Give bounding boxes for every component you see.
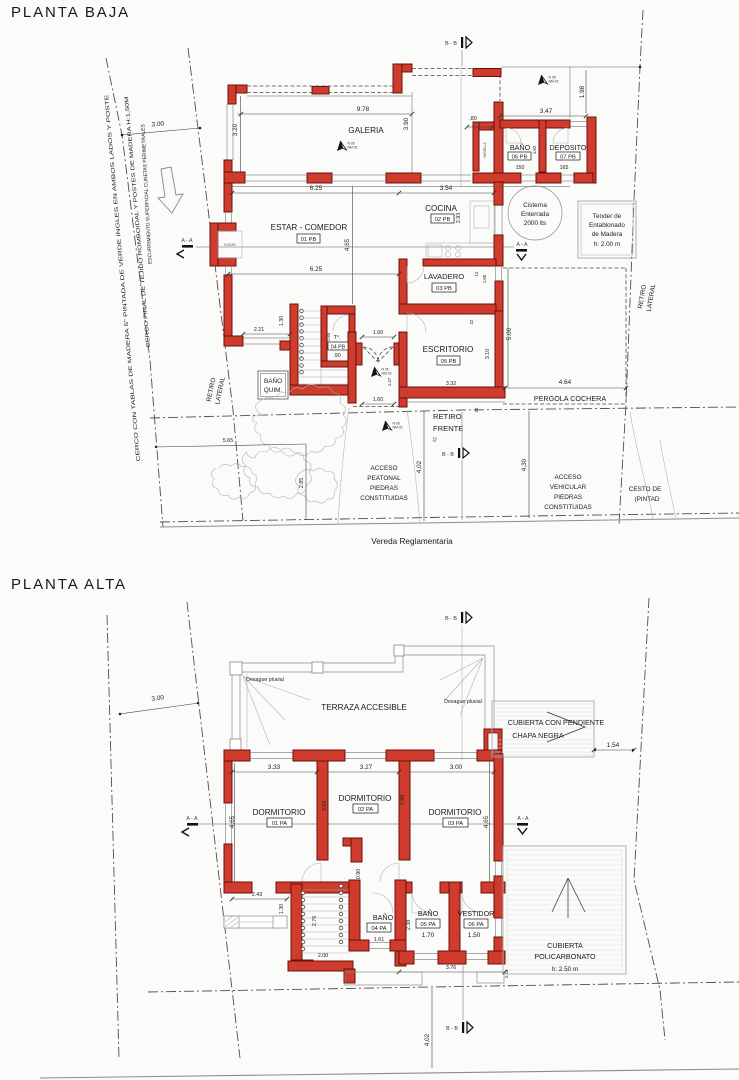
svg-text:A - A: A - A xyxy=(186,816,198,822)
svg-text:4,65: 4,65 xyxy=(229,815,236,828)
svg-text:3.63: 3.63 xyxy=(322,801,328,811)
svg-text:CUBIERTA CON PENDIENTE: CUBIERTA CON PENDIENTE xyxy=(508,718,605,727)
svg-text:04 PB: 04 PB xyxy=(331,345,346,351)
svg-text:4,65: 4,65 xyxy=(344,238,351,251)
svg-text:FRENTE: FRENTE xyxy=(433,424,463,433)
svg-text:1.61: 1.61 xyxy=(374,937,384,943)
svg-text:(PINTAD: (PINTAD xyxy=(634,496,659,503)
svg-text:3.00: 3.00 xyxy=(450,764,463,771)
svg-text:1.47: 1.47 xyxy=(387,377,392,386)
svg-text:1.98: 1.98 xyxy=(579,85,586,98)
svg-text:22: 22 xyxy=(469,319,474,324)
svg-text:VESTIDOR: VESTIDOR xyxy=(458,909,495,918)
svg-text:03 PB: 03 PB xyxy=(436,286,452,292)
svg-text:3.27: 3.27 xyxy=(360,764,373,771)
svg-text:3.33: 3.33 xyxy=(268,764,281,771)
svg-text:de Madera: de Madera xyxy=(592,231,623,238)
svg-text:ESTAR - COMEDOR: ESTAR - COMEDOR xyxy=(271,223,348,232)
svg-text:LAVADERO: LAVADERO xyxy=(424,272,464,281)
svg-text:2.98: 2.98 xyxy=(400,795,406,805)
svg-text:2.85: 2.85 xyxy=(299,478,305,488)
svg-text:TERRAZA ACCESIBLE: TERRAZA ACCESIBLE xyxy=(321,703,407,712)
svg-text:04 PA: 04 PA xyxy=(371,926,386,932)
svg-text:GALERIA: GALERIA xyxy=(348,126,384,135)
svg-text:VEHICULAR: VEHICULAR xyxy=(550,484,587,491)
svg-text:PIEDRAS: PIEDRAS xyxy=(554,494,582,501)
svg-text:3.90: 3.90 xyxy=(403,117,410,130)
svg-text:03 PA: 03 PA xyxy=(448,821,463,827)
svg-text:DORMITORIO: DORMITORIO xyxy=(428,808,481,817)
svg-text:Vereda Reglamentaria: Vereda Reglamentaria xyxy=(371,537,453,546)
svg-text:POLICARBONATO: POLICARBONATO xyxy=(534,952,596,961)
svg-text:2.21: 2.21 xyxy=(254,327,264,333)
svg-text:Desague pluvial: Desague pluvial xyxy=(246,677,284,683)
svg-text:HOGAR: HOGAR xyxy=(224,243,236,247)
svg-text:12: 12 xyxy=(474,271,479,276)
svg-text:DORMITORIO: DORMITORIO xyxy=(252,808,305,817)
svg-text:6.25: 6.25 xyxy=(310,185,323,192)
svg-text:5.65: 5.65 xyxy=(223,438,233,444)
svg-text:1.70: 1.70 xyxy=(422,932,435,939)
svg-text:150: 150 xyxy=(516,165,525,171)
svg-text:PEATONAL: PEATONAL xyxy=(367,475,401,482)
svg-text:2.38: 2.38 xyxy=(406,920,412,930)
svg-text:DEPOSITO: DEPOSITO xyxy=(549,143,586,152)
svg-text:1.30: 1.30 xyxy=(279,904,285,914)
svg-text:1.50: 1.50 xyxy=(468,932,481,939)
svg-text:05 PB: 05 PB xyxy=(441,359,457,365)
svg-text:h: 2.00 m: h: 2.00 m xyxy=(594,241,621,248)
svg-text:02 PA: 02 PA xyxy=(358,807,373,813)
svg-text:1.30: 1.30 xyxy=(279,316,285,326)
svg-text:COCINA: COCINA xyxy=(425,204,457,213)
svg-text:Desague pluvial: Desague pluvial xyxy=(444,699,482,705)
svg-text:01 PA: 01 PA xyxy=(272,821,287,827)
svg-text:Entablonado: Entablonado xyxy=(589,222,625,229)
svg-text:1.60: 1.60 xyxy=(482,274,487,283)
svg-text:06 PB: 06 PB xyxy=(512,155,528,161)
svg-text:CUBIERTA: CUBIERTA xyxy=(547,941,583,950)
svg-text:1.84: 1.84 xyxy=(326,332,331,341)
svg-text:3.00: 3.00 xyxy=(151,694,165,703)
svg-text:0.90: 0.90 xyxy=(356,869,362,879)
svg-text:2.93: 2.93 xyxy=(456,213,462,223)
svg-text:Enterrada: Enterrada xyxy=(521,211,550,218)
svg-text:6.25: 6.25 xyxy=(310,266,323,273)
svg-text:CONSTITUIDAS: CONSTITUIDAS xyxy=(360,495,408,502)
svg-text:T°.: T°. xyxy=(334,335,341,341)
svg-text:22: 22 xyxy=(432,436,438,443)
svg-text:07 PB: 07 PB xyxy=(560,155,576,161)
svg-text:B - B: B - B xyxy=(442,452,454,458)
svg-text:PERGOLA COCHERA: PERGOLA COCHERA xyxy=(534,394,606,403)
svg-text:RETIRO: RETIRO xyxy=(433,412,462,421)
svg-text:3.54: 3.54 xyxy=(440,185,453,192)
svg-text:3.32: 3.32 xyxy=(446,381,456,387)
svg-text:PLANTA ALTA: PLANTA ALTA xyxy=(11,576,127,593)
svg-text:4.64: 4.64 xyxy=(559,379,572,386)
svg-text:2.00: 2.00 xyxy=(318,953,328,959)
svg-text:01 PB: 01 PB xyxy=(301,237,317,243)
svg-text:4,30: 4,30 xyxy=(521,458,528,471)
svg-text:QUIM.: QUIM. xyxy=(264,387,283,394)
svg-text:3.00: 3.00 xyxy=(151,120,164,128)
svg-text:165: 165 xyxy=(560,165,569,171)
svg-text:ESCRITORIO: ESCRITORIO xyxy=(423,345,474,354)
svg-text:PLANTA BAJA: PLANTA BAJA xyxy=(11,4,130,21)
svg-text:3.20: 3.20 xyxy=(232,123,239,136)
svg-text:.90: .90 xyxy=(333,353,340,359)
svg-text:BAÑO: BAÑO xyxy=(373,913,394,922)
svg-text:B - B: B - B xyxy=(445,616,457,622)
svg-text:A - A: A - A xyxy=(516,242,528,248)
svg-text:DORMITORIO: DORMITORIO xyxy=(338,794,391,803)
svg-text:Cisterna: Cisterna xyxy=(523,202,547,209)
svg-text:BAÑO: BAÑO xyxy=(264,376,282,385)
svg-text:B - B: B - B xyxy=(446,1026,458,1032)
svg-text:BAÑO: BAÑO xyxy=(510,143,531,152)
svg-text:02 PB: 02 PB xyxy=(435,217,451,223)
svg-text:ACCESO: ACCESO xyxy=(371,465,398,472)
svg-text:4,02: 4,02 xyxy=(416,460,423,473)
svg-text:A - A: A - A xyxy=(181,238,193,244)
svg-text:2.76: 2.76 xyxy=(312,916,318,926)
svg-text:22: 22 xyxy=(474,407,479,412)
svg-text:BAÑO: BAÑO xyxy=(418,909,439,918)
svg-text:.80: .80 xyxy=(469,116,476,122)
svg-text:PARRILLA: PARRILLA xyxy=(483,142,487,158)
svg-text:h: 2.50 m: h: 2.50 m xyxy=(552,966,579,973)
svg-text:2000 lts: 2000 lts xyxy=(524,220,546,227)
svg-text:5.00: 5.00 xyxy=(506,327,513,340)
svg-text:1.60: 1.60 xyxy=(373,397,383,403)
svg-text:05 PA: 05 PA xyxy=(420,922,435,928)
svg-text:1.82: 1.82 xyxy=(532,145,537,154)
svg-text:CERCO CON TABLAS DE MADERA 5": CERCO CON TABLAS DE MADERA 5" PINTADA DE… xyxy=(104,94,142,462)
svg-text:06 PA: 06 PA xyxy=(468,922,483,928)
svg-text:B - B: B - B xyxy=(445,41,457,47)
svg-text:3.76: 3.76 xyxy=(446,965,456,971)
svg-text:ACCESO: ACCESO xyxy=(555,474,582,481)
svg-text:4,65: 4,65 xyxy=(483,815,490,828)
svg-text:A - A: A - A xyxy=(517,816,529,822)
svg-text:1.54: 1.54 xyxy=(607,742,620,749)
svg-text:3.10: 3.10 xyxy=(485,349,491,359)
svg-text:4,02: 4,02 xyxy=(424,1033,431,1046)
svg-text:2.43: 2.43 xyxy=(252,892,262,898)
svg-text:PIEDRAS: PIEDRAS xyxy=(370,485,398,492)
svg-text:CONSTITUIDAS: CONSTITUIDAS xyxy=(544,504,592,511)
svg-text:9.78: 9.78 xyxy=(357,106,370,113)
svg-text:Tender de: Tender de xyxy=(593,213,622,220)
svg-text:CESTO DE: CESTO DE xyxy=(629,486,662,493)
svg-text:3.47: 3.47 xyxy=(540,108,553,115)
svg-text:1.60: 1.60 xyxy=(373,330,383,336)
